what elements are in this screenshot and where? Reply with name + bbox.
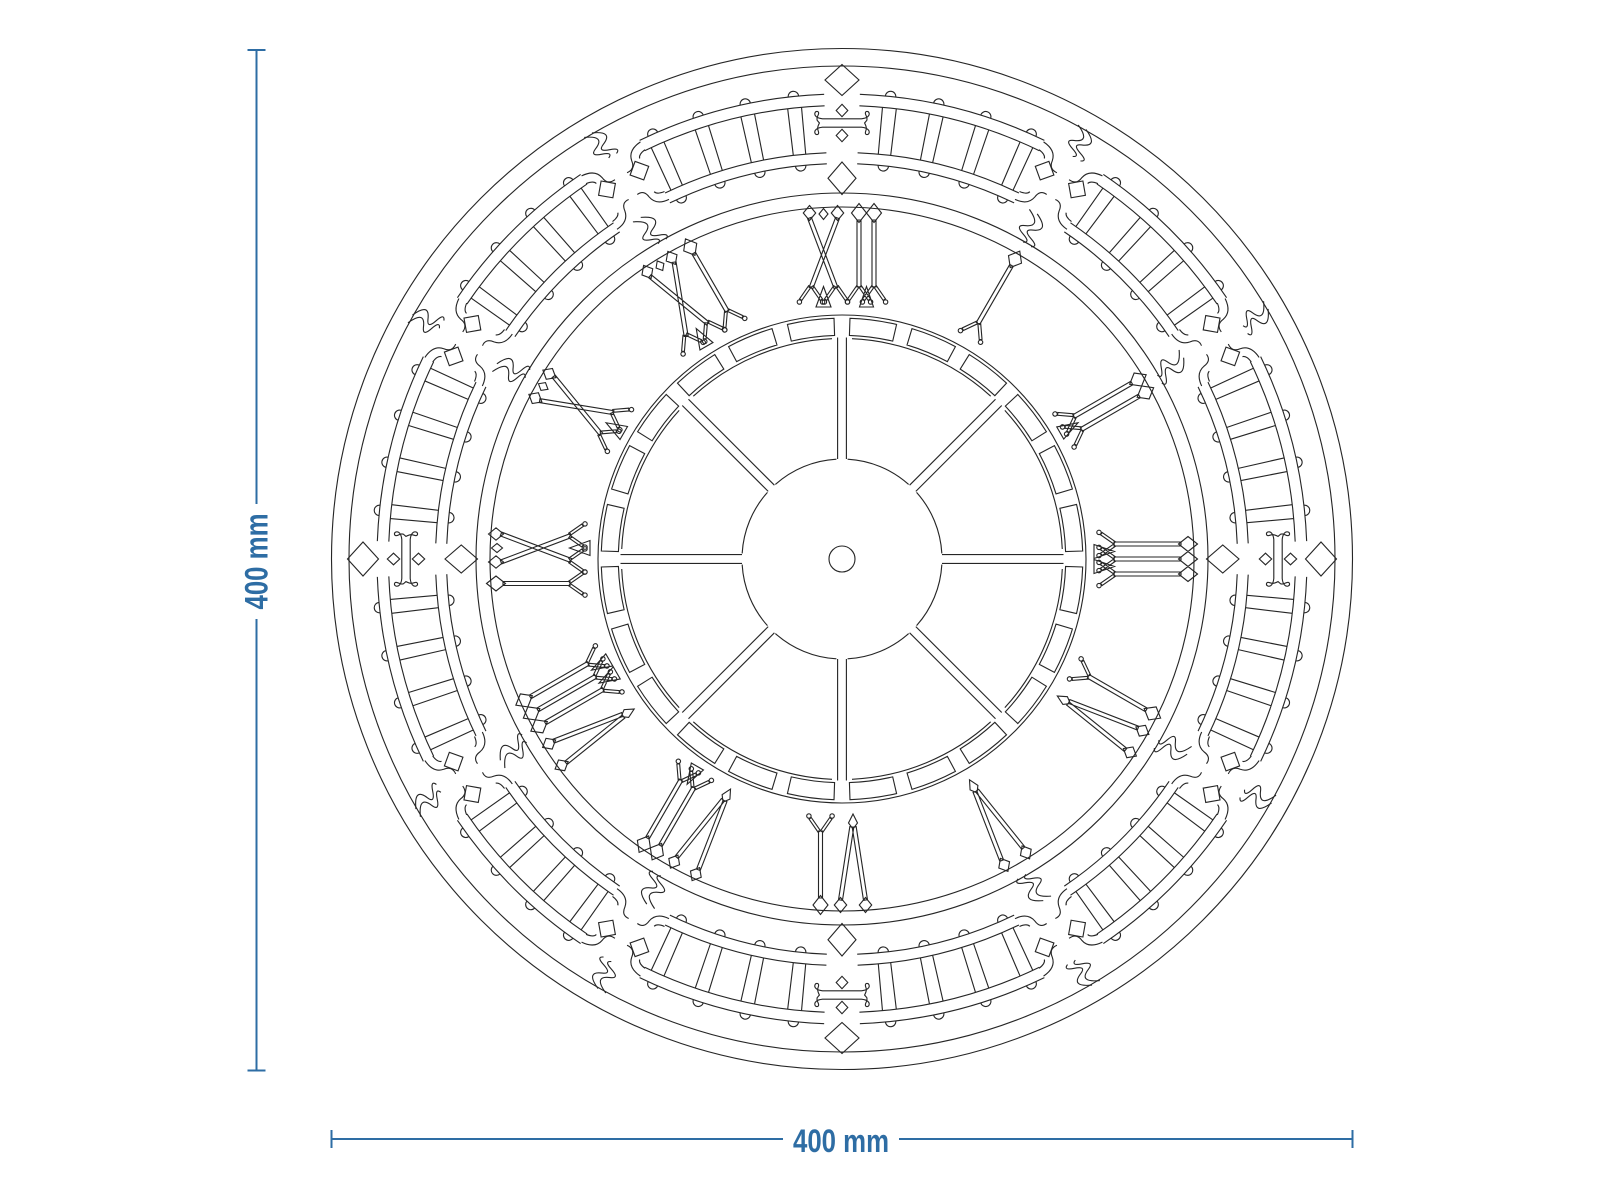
svg-text:400 mm: 400 mm — [239, 514, 275, 610]
svg-text:400 mm: 400 mm — [793, 1123, 889, 1159]
